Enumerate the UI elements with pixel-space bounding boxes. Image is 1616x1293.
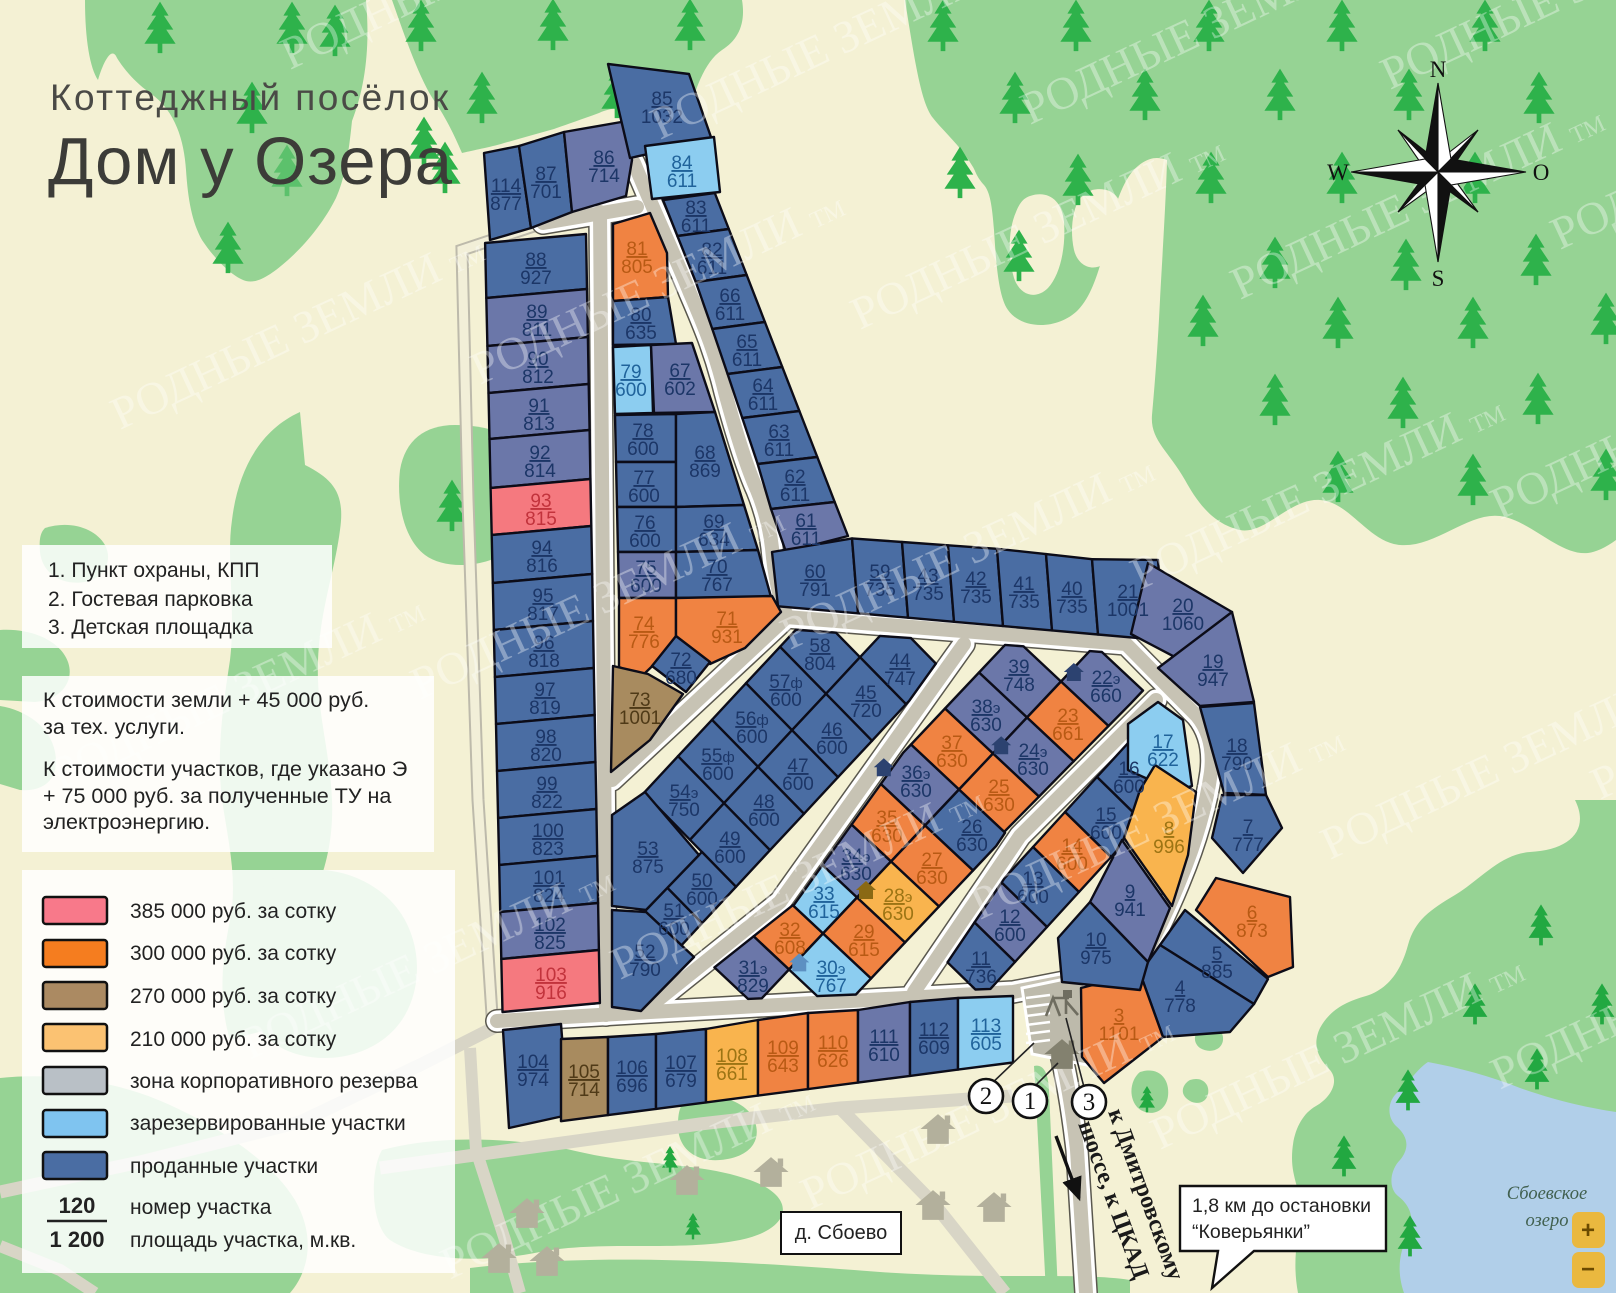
svg-text:605: 605 — [970, 1034, 1002, 1055]
svg-text:767: 767 — [701, 575, 733, 596]
svg-text:электроэнергию.: электроэнергию. — [43, 810, 210, 834]
svg-text:701: 701 — [530, 182, 562, 203]
svg-text:916: 916 — [535, 983, 567, 1004]
svg-text:615: 615 — [808, 902, 840, 923]
svg-text:600: 600 — [782, 774, 814, 795]
svg-text:озеро: озеро — [1526, 1211, 1569, 1231]
svg-text:661: 661 — [716, 1064, 748, 1085]
svg-text:869: 869 — [689, 461, 721, 482]
svg-text:877: 877 — [490, 194, 522, 215]
svg-text:611: 611 — [748, 394, 778, 415]
svg-text:611: 611 — [791, 529, 821, 550]
svg-text:120: 120 — [59, 1193, 96, 1218]
svg-text:1: 1 — [1024, 1088, 1037, 1115]
svg-text:735: 735 — [1008, 592, 1040, 613]
svg-text:931: 931 — [711, 627, 743, 648]
svg-text:747: 747 — [884, 669, 916, 690]
svg-text:804: 804 — [804, 654, 836, 675]
svg-text:615: 615 — [848, 940, 880, 961]
svg-text:600: 600 — [627, 439, 659, 460]
svg-text:номер участка: номер участка — [130, 1196, 272, 1219]
svg-text:611: 611 — [732, 350, 762, 371]
svg-text:813: 813 — [523, 414, 555, 435]
svg-text:720: 720 — [850, 701, 882, 722]
svg-text:610: 610 — [868, 1045, 900, 1066]
svg-text:622: 622 — [1147, 750, 1179, 771]
svg-text:626: 626 — [817, 1051, 849, 1072]
svg-text:+ 75 000 руб. за полученные ТУ: + 75 000 руб. за полученные ТУ на — [43, 784, 391, 808]
svg-text:2. Гостевая парковка: 2. Гостевая парковка — [48, 588, 253, 611]
svg-text:1001: 1001 — [1107, 600, 1149, 621]
svg-text:819: 819 — [529, 698, 561, 719]
svg-text:777: 777 — [1232, 835, 1264, 856]
svg-text:816: 816 — [526, 556, 558, 577]
svg-text:814: 814 — [524, 461, 556, 482]
svg-text:Сбоевское: Сбоевское — [1507, 1184, 1587, 1204]
svg-text:823: 823 — [532, 839, 564, 860]
svg-text:630: 630 — [936, 751, 968, 772]
svg-text:Коттеджный посёлок: Коттеджный посёлок — [50, 77, 451, 118]
svg-text:776: 776 — [628, 632, 660, 653]
svg-text:д. Сбоево: д. Сбоево — [795, 1222, 887, 1244]
svg-text:1060: 1060 — [1162, 614, 1204, 635]
svg-text:600: 600 — [736, 727, 768, 748]
svg-text:609: 609 — [918, 1038, 950, 1059]
svg-text:зарезервированные участки: зарезервированные участки — [130, 1112, 406, 1135]
svg-text:815: 815 — [525, 509, 557, 530]
svg-text:270 000 руб. за сотку: 270 000 руб. за сотку — [130, 985, 337, 1008]
svg-text:600: 600 — [748, 810, 780, 831]
svg-text:+: + — [1581, 1217, 1595, 1244]
svg-text:зона корпоративного резерва: зона корпоративного резерва — [130, 1070, 418, 1093]
svg-text:за тех. услуги.: за тех. услуги. — [43, 715, 185, 739]
svg-text:611: 611 — [667, 171, 697, 192]
svg-text:822: 822 — [531, 792, 563, 813]
svg-text:3: 3 — [1083, 1089, 1096, 1116]
svg-text:600: 600 — [702, 764, 734, 785]
svg-text:К стоимости участков, где указ: К стоимости участков, где указано Э — [43, 757, 407, 781]
svg-text:Дом у Озера: Дом у Озера — [48, 124, 453, 199]
svg-text:778: 778 — [1164, 996, 1196, 1017]
svg-text:210 000 руб. за сотку: 210 000 руб. за сотку — [130, 1028, 337, 1051]
svg-text:W: W — [1327, 160, 1349, 185]
svg-text:S: S — [1432, 266, 1445, 291]
svg-text:600: 600 — [770, 690, 802, 711]
svg-text:750: 750 — [668, 800, 700, 821]
svg-text:679: 679 — [665, 1071, 697, 1092]
svg-text:947: 947 — [1197, 670, 1229, 691]
svg-text:736: 736 — [965, 967, 997, 988]
svg-text:680: 680 — [665, 668, 697, 689]
svg-text:600: 600 — [714, 847, 746, 868]
svg-text:635: 635 — [625, 323, 657, 344]
svg-text:проданные участки: проданные участки — [130, 1155, 318, 1178]
svg-text:630: 630 — [916, 868, 948, 889]
svg-text:1. Пункт охраны, КПП: 1. Пункт охраны, КПП — [48, 559, 260, 582]
svg-text:975: 975 — [1080, 948, 1112, 969]
svg-text:1 200: 1 200 — [49, 1227, 104, 1252]
svg-text:767: 767 — [815, 976, 847, 997]
svg-text:602: 602 — [664, 379, 696, 400]
svg-text:“Коверьянки”: “Коверьянки” — [1192, 1221, 1310, 1243]
svg-text:661: 661 — [1052, 724, 1084, 745]
svg-text:611: 611 — [715, 304, 745, 325]
svg-text:660: 660 — [1090, 686, 1122, 707]
svg-text:630: 630 — [882, 904, 914, 925]
svg-text:735: 735 — [960, 587, 992, 608]
svg-text:2: 2 — [980, 1083, 993, 1110]
svg-text:974: 974 — [517, 1070, 549, 1091]
svg-text:643: 643 — [767, 1056, 799, 1077]
svg-text:885: 885 — [1201, 962, 1233, 983]
svg-text:630: 630 — [970, 715, 1002, 736]
svg-text:К стоимости земли + 45 000 руб: К стоимости земли + 45 000 руб. — [43, 688, 369, 712]
svg-text:873: 873 — [1236, 921, 1268, 942]
svg-text:600: 600 — [1113, 777, 1145, 798]
svg-text:600: 600 — [628, 486, 660, 507]
svg-text:748: 748 — [1003, 675, 1035, 696]
svg-text:820: 820 — [530, 745, 562, 766]
svg-text:385 000 руб. за сотку: 385 000 руб. за сотку — [130, 900, 337, 923]
svg-text:875: 875 — [632, 857, 664, 878]
svg-text:696: 696 — [616, 1076, 648, 1097]
svg-text:1,8 км до остановки: 1,8 км до остановки — [1192, 1195, 1371, 1217]
svg-text:1001: 1001 — [619, 708, 661, 729]
svg-text:−: − — [1581, 1256, 1595, 1283]
svg-text:927: 927 — [520, 268, 552, 289]
svg-text:3. Детская площадка: 3. Детская площадка — [48, 616, 253, 639]
svg-text:630: 630 — [956, 835, 988, 856]
svg-text:941: 941 — [1114, 900, 1146, 921]
svg-text:735: 735 — [1056, 597, 1088, 618]
svg-text:O: O — [1533, 160, 1550, 185]
svg-text:714: 714 — [568, 1080, 600, 1101]
svg-text:площадь участка, м.кв.: площадь участка, м.кв. — [130, 1229, 356, 1252]
svg-text:714: 714 — [588, 166, 620, 187]
svg-text:600: 600 — [994, 925, 1026, 946]
svg-text:611: 611 — [764, 440, 794, 461]
svg-text:600: 600 — [615, 380, 647, 401]
svg-text:N: N — [1430, 57, 1447, 82]
svg-text:300 000 руб. за сотку: 300 000 руб. за сотку — [130, 942, 337, 965]
svg-text:829: 829 — [737, 976, 769, 997]
svg-text:600: 600 — [816, 738, 848, 759]
svg-text:630: 630 — [1017, 759, 1049, 780]
svg-text:611: 611 — [780, 485, 810, 506]
